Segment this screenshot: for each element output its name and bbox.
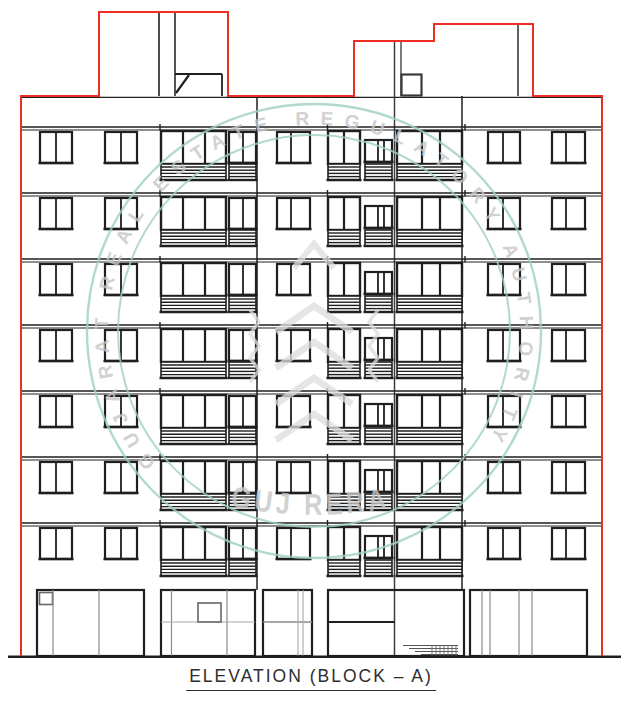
floor-row-1 (21, 124, 602, 180)
rooftop-structure-right (401, 24, 518, 96)
elevation-sheet: GUJARAT REAL ESTATE REGULATORY AUTHORITY… (0, 0, 624, 714)
floor-row-7 (21, 520, 602, 576)
watermark-ring-text: GUJARAT REAL ESTATE REGULATORY AUTHORITY (91, 108, 537, 474)
building-facade (8, 12, 621, 657)
elevation-drawing: GUJARAT REAL ESTATE REGULATORY AUTHORITY… (0, 0, 624, 714)
rooftop-structure-left (159, 12, 222, 96)
ground-floor (37, 590, 587, 656)
drawing-caption: ELEVATION (BLOCK – A) (186, 666, 436, 691)
elevation-drawing-host: GUJARAT REAL ESTATE REGULATORY AUTHORITY… (0, 0, 624, 714)
rera-watermark: GUJARAT REAL ESTATE REGULATORY AUTHORITY… (87, 104, 541, 558)
